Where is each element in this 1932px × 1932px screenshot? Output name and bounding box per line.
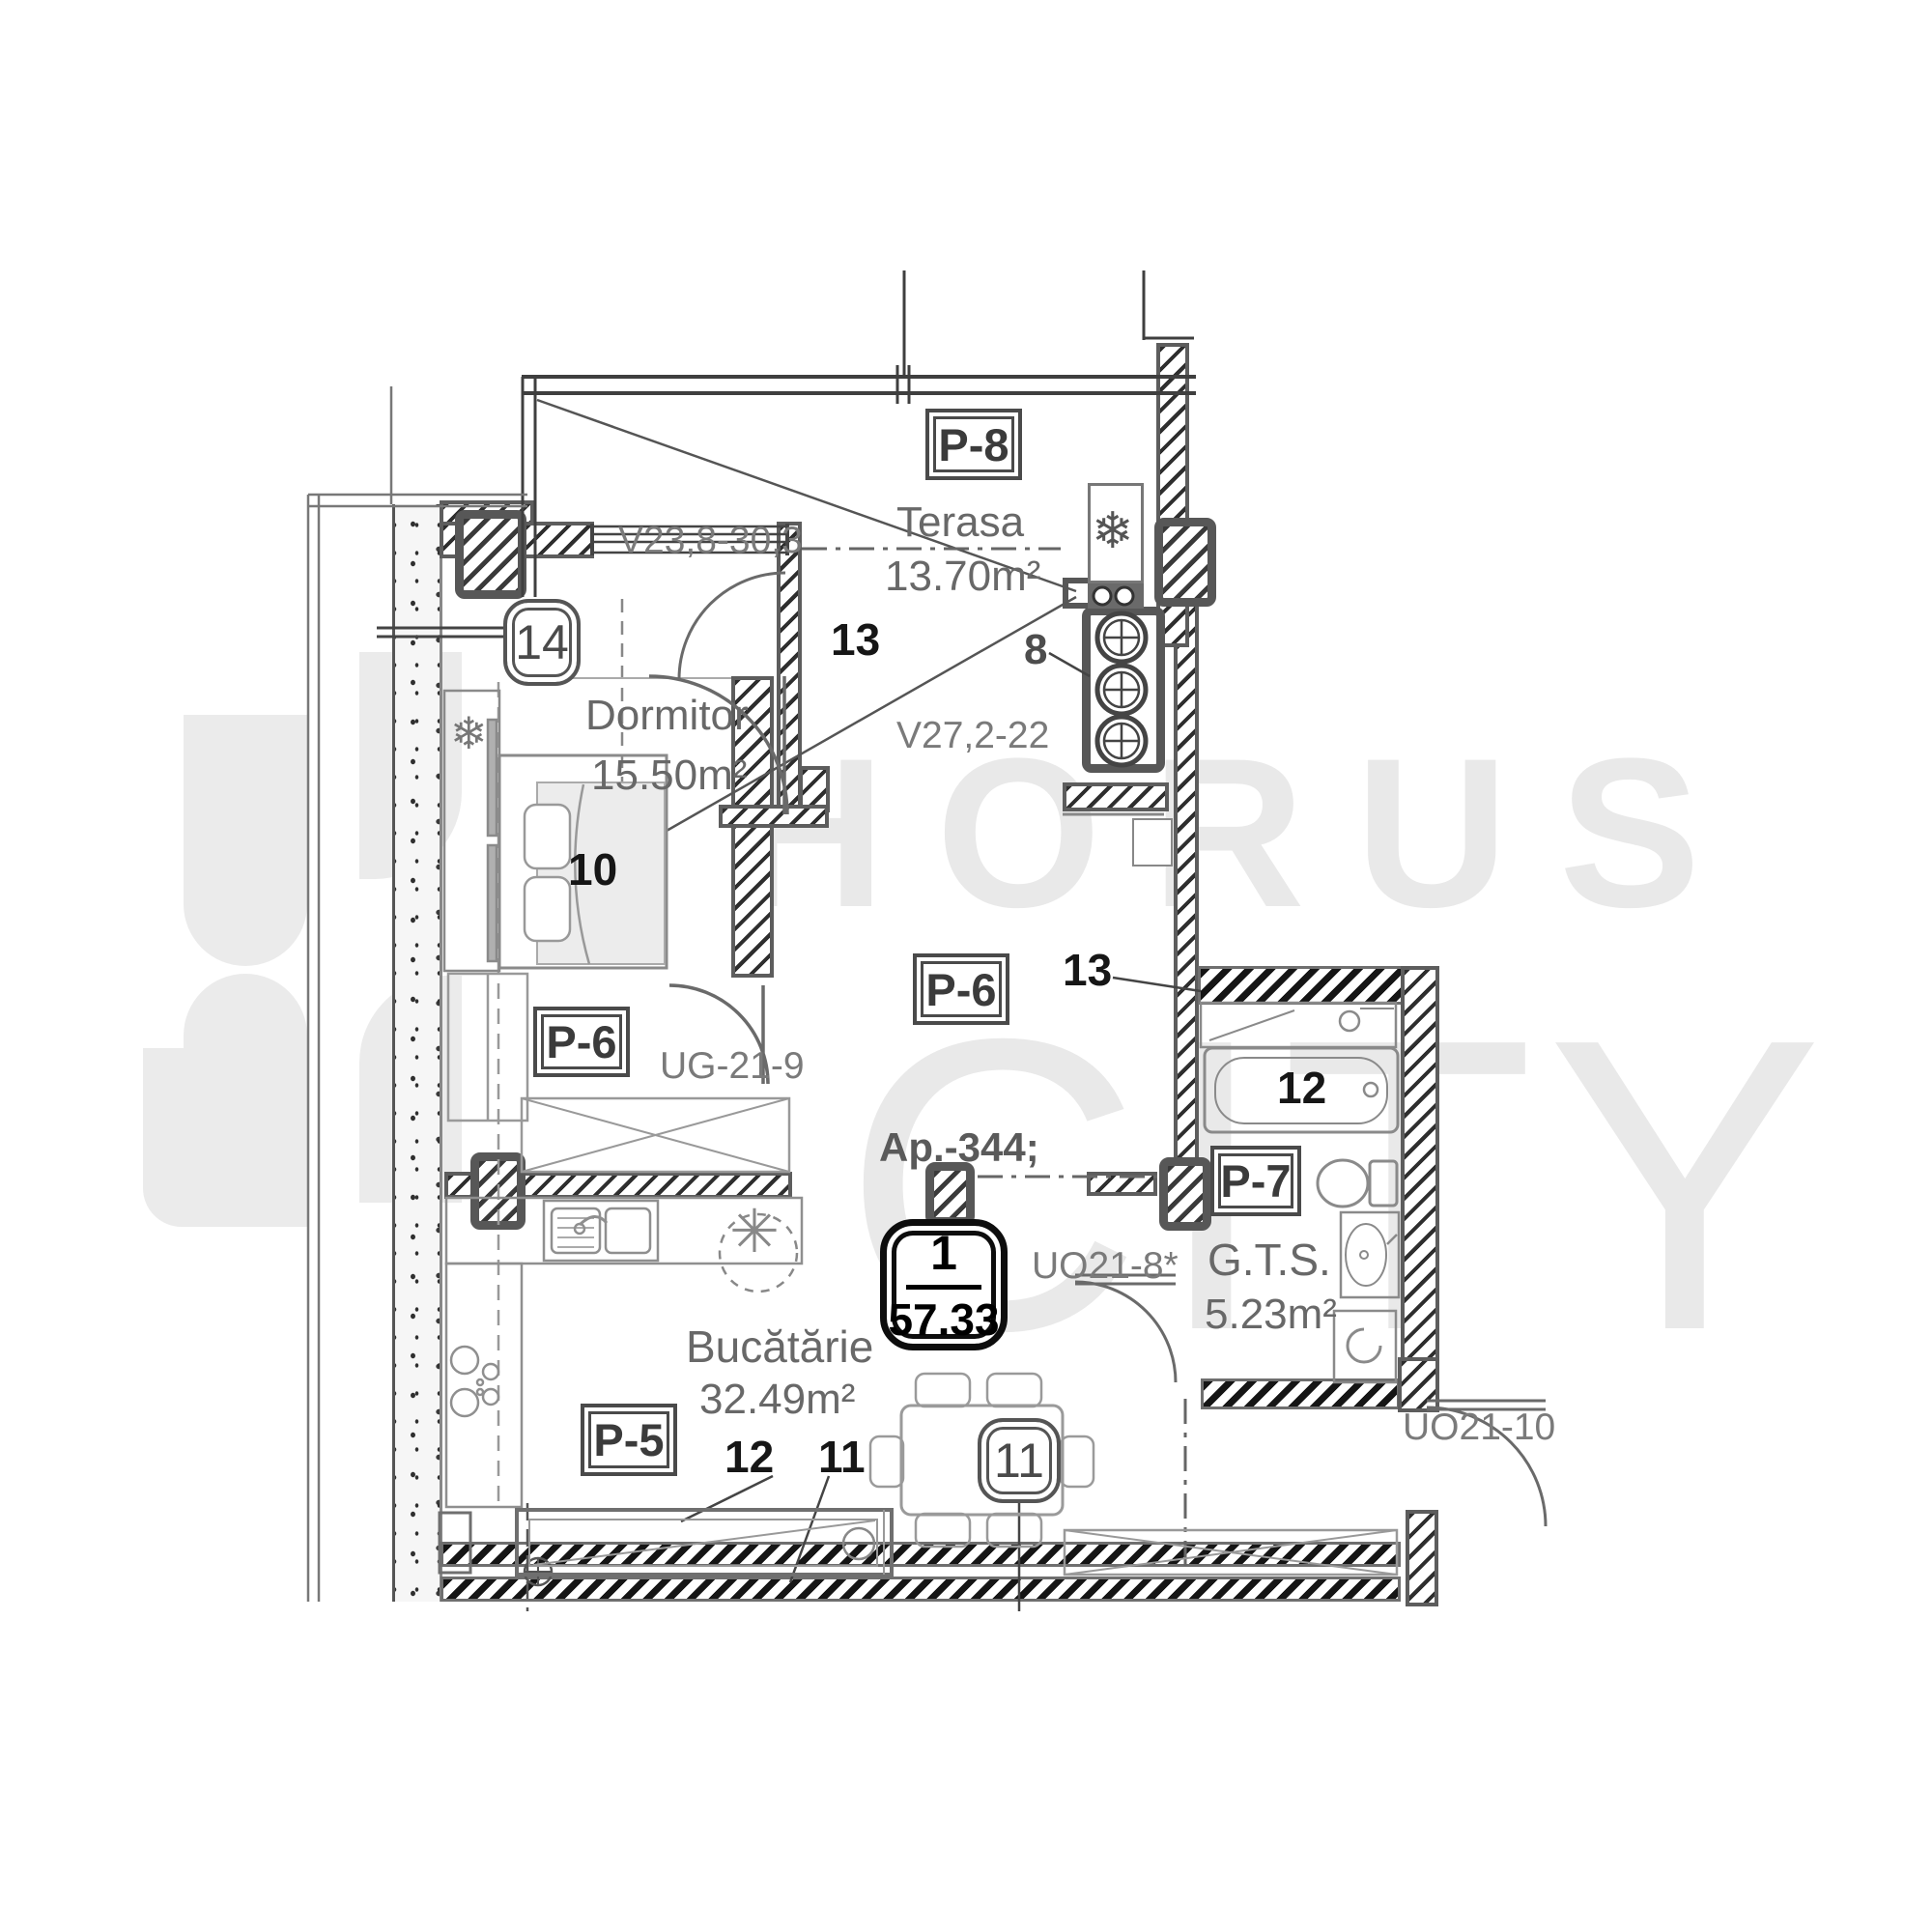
badge-wardrobe-14: 14	[503, 599, 581, 686]
room-name-bucatarie: Bucătărie	[686, 1323, 873, 1370]
badge-11-text: 11	[994, 1433, 1044, 1489]
door-label-p6-living-text: P-6	[925, 963, 996, 1016]
snowflake-icon: ❄	[1092, 506, 1134, 556]
floorplan-page: { "watermark": { "brand_top": "HORUS", "…	[0, 0, 1932, 1932]
zone-number-terrace: 13	[831, 616, 880, 663]
door-label-p6-bedroom-text: P-6	[546, 1015, 616, 1068]
window-code-inner: V27,2-22	[896, 717, 1049, 756]
room-name-dormitor: Dormitor	[585, 694, 749, 738]
room-name-gts: G.T.S.	[1207, 1236, 1331, 1283]
apartment-area-badge: 1 57.33	[880, 1219, 1008, 1350]
apartment-unit-number: 1	[930, 1225, 957, 1281]
riser-number: 8	[1024, 628, 1047, 672]
item-number-bed: 10	[568, 846, 617, 893]
window-code-terrace: V23,8-30,3	[618, 522, 803, 561]
door-label-p7-text: P-7	[1220, 1154, 1291, 1207]
snowflake-icon: ❄	[450, 711, 488, 755]
door-label-p6-living: P-6	[913, 953, 1009, 1025]
room-area-terasa: 13.70m²	[885, 554, 1040, 599]
boiler-star-icon: ✳	[729, 1203, 780, 1263]
room-area-gts: 5.23m²	[1205, 1293, 1337, 1337]
item-number-kitchen-b: 11	[818, 1434, 866, 1480]
door-code-bath: UO21-8*	[1032, 1247, 1179, 1287]
door-label-p5-text: P-5	[593, 1413, 664, 1466]
door-label-p6-bedroom: P-6	[533, 1007, 630, 1077]
badge-table-11: 11	[978, 1418, 1061, 1503]
room-name-terasa: Terasa	[896, 500, 1024, 545]
item-number-kitchen-a: 12	[724, 1434, 774, 1480]
apartment-number-label: Ap.-344;	[879, 1126, 1039, 1169]
door-label-p7: P-7	[1210, 1146, 1301, 1216]
door-label-p5: P-5	[581, 1404, 677, 1476]
door-label-p8-text: P-8	[938, 418, 1009, 471]
apartment-total-area: 57.33	[888, 1293, 999, 1346]
room-area-bucatarie: 32.49m²	[699, 1378, 855, 1422]
door-code-entry: UO21-10	[1403, 1408, 1555, 1448]
door-label-p8: P-8	[925, 409, 1022, 480]
badge-14-text: 14	[515, 614, 569, 670]
zone-number-hall: 13	[1063, 947, 1112, 993]
item-number-bathtub: 12	[1277, 1065, 1326, 1111]
badge-divider	[906, 1285, 981, 1290]
room-area-dormitor: 15.50m²	[591, 753, 747, 798]
sliding-door-code: UG-21-9	[660, 1047, 805, 1087]
